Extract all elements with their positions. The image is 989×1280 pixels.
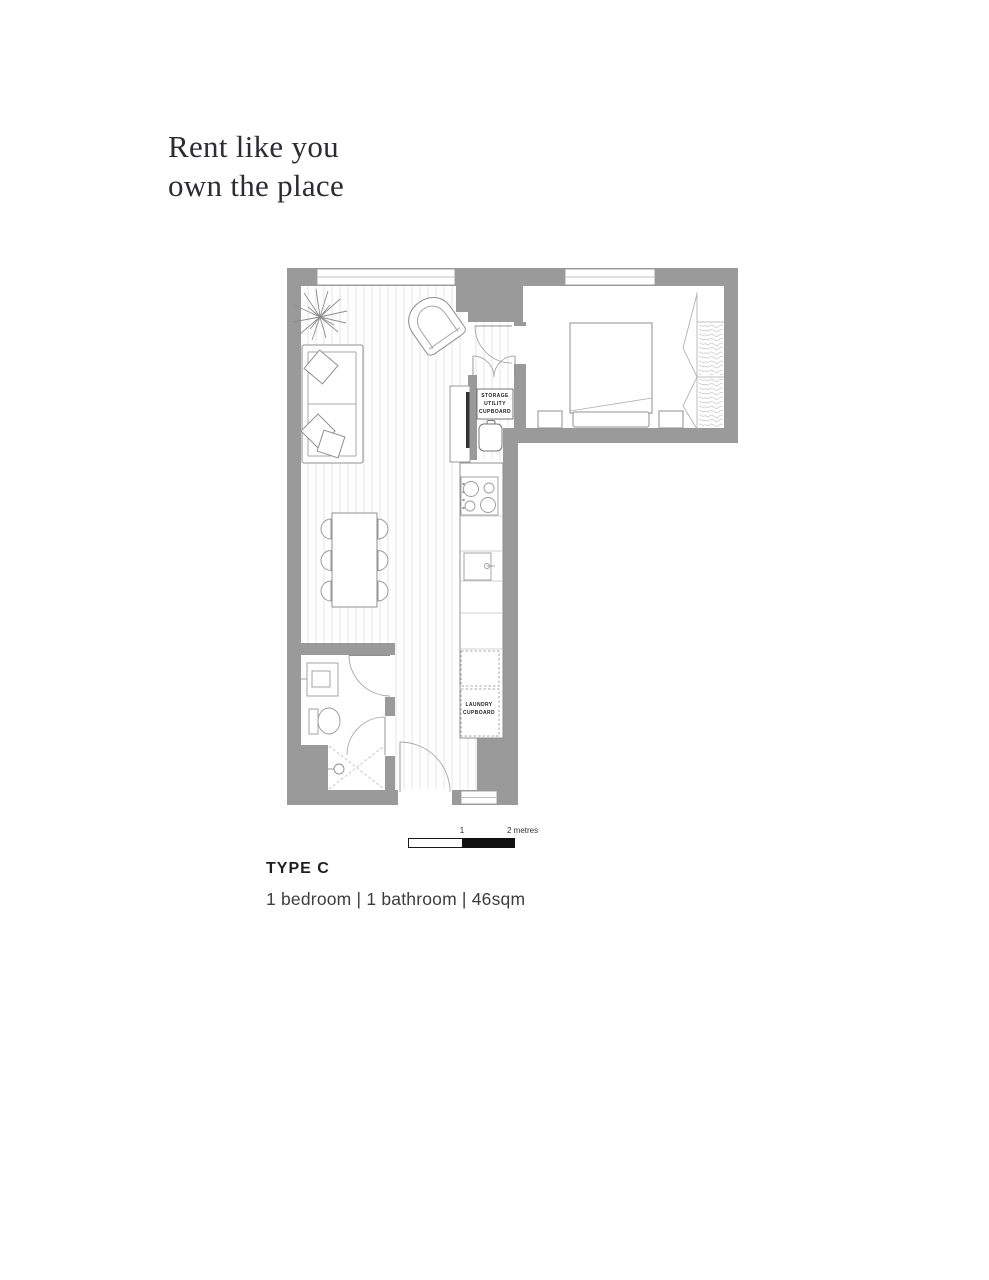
scale-tick-1: 1 — [456, 826, 468, 835]
living-window — [317, 269, 455, 285]
toilet — [309, 708, 340, 734]
hall-window — [461, 791, 497, 804]
wardrobe — [683, 292, 724, 429]
hanging-clothes — [699, 324, 723, 375]
scale-bar-segment-white — [408, 838, 463, 848]
brochure-page: Rent like you own the place — [0, 0, 989, 1280]
hanging-clothes — [699, 379, 723, 427]
dining-table — [332, 513, 377, 607]
tv — [466, 392, 470, 448]
tv-cabinet — [450, 386, 470, 462]
storage-cupboard-label: STORAGE UTILITY CUPBOARD — [477, 392, 513, 416]
wardrobe-doors — [683, 294, 697, 429]
nightstand-left — [538, 411, 562, 428]
kitchen-counter — [460, 463, 503, 738]
floorplan-svg — [0, 0, 989, 1280]
scale-bar-segment-black — [462, 838, 515, 848]
sofa — [301, 345, 363, 463]
nightstand-right — [659, 411, 683, 428]
headboard — [573, 412, 649, 427]
bed — [538, 323, 683, 428]
bedroom-window — [565, 269, 655, 285]
unit-specs: 1 bedroom | 1 bathroom | 46sqm — [266, 889, 525, 910]
water-heater — [479, 421, 502, 452]
laundry-cupboard-label: LAUNDRY CUPBOARD — [458, 701, 500, 717]
unit-type-label: TYPE C — [266, 860, 330, 878]
scale-tick-2-metres: 2 metres — [507, 826, 538, 835]
